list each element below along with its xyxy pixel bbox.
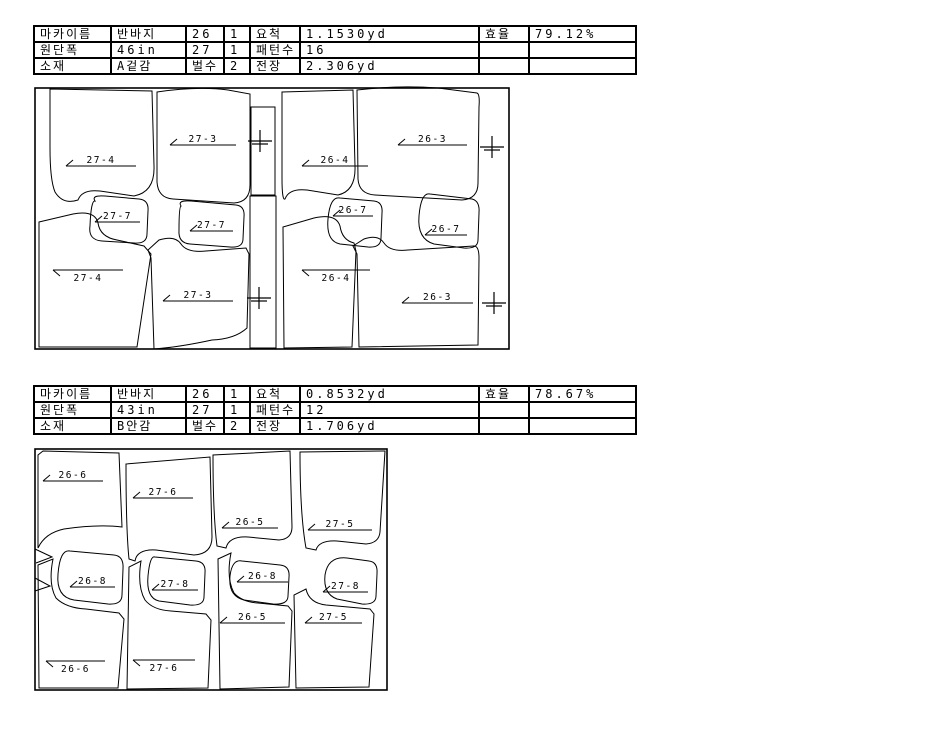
piece-label: 26-5 [222, 517, 278, 528]
marker-b-layout-canvas[interactable]: 26-627-626-527-526-827-826-827-826-627-6… [28, 444, 396, 696]
info-cell-r1c7 [529, 42, 636, 58]
piece-label-text: 26-5 [238, 612, 267, 623]
piece-label: 27-8 [323, 581, 368, 592]
piece-label: 26-5 [220, 612, 285, 623]
info-cell-r0c6: 효율 [479, 26, 529, 42]
piece-label-text: 27-4 [87, 155, 116, 166]
info-row: 소재A겉감벌수2전장2.306yd [34, 58, 636, 74]
piece-label: 26-6 [43, 470, 103, 481]
label-tick-icon [305, 617, 312, 623]
label-tick-icon [46, 661, 53, 667]
label-tick-icon [133, 492, 140, 498]
label-tick-icon [308, 524, 315, 530]
info-cell-r0c4: 요척 [250, 386, 300, 402]
info-cell-r2c7 [529, 418, 636, 434]
info-cell-r1c7 [529, 402, 636, 418]
info-cell-r0c1: 반바지 [111, 386, 186, 402]
info-cell-r2c0: 소재 [34, 58, 111, 74]
piece-label: 27-7 [190, 220, 233, 231]
pattern-piece-26-7[interactable] [419, 194, 479, 248]
info-cell-r1c0: 원단폭 [34, 402, 111, 418]
info-row: 마카이름반바지261요척1.1530yd효율79.12% [34, 26, 636, 42]
info-cell-r1c5: 16 [300, 42, 479, 58]
label-tick-icon [53, 270, 60, 276]
edge-notch [35, 578, 50, 591]
info-cell-r1c4: 패턴수 [250, 402, 300, 418]
info-row: 소재B안감벌수2전장1.706yd [34, 418, 636, 434]
info-cell-r2c4: 전장 [250, 58, 300, 74]
label-tick-icon [163, 295, 170, 301]
info-cell-r0c2: 26 [186, 386, 224, 402]
piece-label-text: 27-7 [197, 220, 226, 231]
plus-mark-icon [248, 130, 272, 152]
piece-label-text: 26-7 [432, 224, 461, 235]
info-cell-r2c3: 2 [224, 58, 250, 74]
pattern-piece-26-5[interactable] [213, 451, 292, 548]
marker-b-info-table: 마카이름반바지261요척0.8532yd효율78.67%원단폭43in271패턴… [33, 385, 637, 435]
label-tick-icon [237, 576, 244, 582]
marker-report-page: 마카이름반바지261요척1.1530yd효율79.12%원단폭46in271패턴… [0, 0, 939, 740]
piece-label: 27-5 [305, 612, 362, 623]
piece-label: 27-3 [170, 134, 236, 145]
piece-label-text: 27-6 [150, 663, 179, 674]
label-tick-icon [220, 617, 227, 623]
pattern-piece-27-5[interactable] [300, 451, 385, 550]
piece-label-text: 26-7 [339, 205, 368, 216]
pattern-piece-26-3[interactable] [353, 237, 479, 347]
label-tick-icon [66, 160, 73, 166]
piece-label-text: 27-4 [74, 273, 103, 284]
piece-label-text: 27-8 [161, 579, 190, 590]
info-cell-r2c5: 1.706yd [300, 418, 479, 434]
info-cell-r2c1: B안감 [111, 418, 186, 434]
piece-label: 27-4 [53, 270, 123, 284]
info-cell-r1c2: 27 [186, 402, 224, 418]
plus-mark-icon [482, 292, 506, 314]
info-cell-r0c0: 마카이름 [34, 386, 111, 402]
label-tick-icon [70, 581, 77, 587]
info-cell-r1c0: 원단폭 [34, 42, 111, 58]
info-cell-r1c6 [479, 402, 529, 418]
info-cell-r1c1: 43in [111, 402, 186, 418]
info-cell-r1c3: 1 [224, 402, 250, 418]
piece-label: 27-6 [133, 660, 195, 674]
label-tick-icon [43, 475, 50, 481]
piece-label: 27-3 [163, 290, 233, 301]
piece-label-text: 27-3 [189, 134, 218, 145]
piece-label: 27-5 [308, 519, 372, 530]
pattern-piece-27-4[interactable] [50, 89, 154, 201]
info-cell-r2c2: 벌수 [186, 58, 224, 74]
info-cell-r2c6 [479, 418, 529, 434]
piece-label: 27-4 [66, 155, 136, 166]
piece-label: 26-6 [46, 661, 105, 675]
info-cell-r2c6 [479, 58, 529, 74]
info-cell-r0c7: 78.67% [529, 386, 636, 402]
piece-label: 27-8 [152, 579, 198, 590]
info-cell-r2c2: 벌수 [186, 418, 224, 434]
info-cell-r2c3: 2 [224, 418, 250, 434]
piece-label: 26-3 [398, 134, 467, 145]
piece-label: 26-7 [425, 224, 467, 235]
piece-label: 26-4 [302, 270, 370, 284]
piece-label-text: 27-7 [103, 211, 132, 222]
info-cell-r2c1: A겉감 [111, 58, 186, 74]
label-tick-icon [170, 139, 177, 145]
piece-label-text: 27-5 [319, 612, 348, 623]
info-row: 원단폭43in271패턴수12 [34, 402, 636, 418]
piece-label: 26-8 [237, 571, 288, 582]
piece-label-text: 26-6 [59, 470, 88, 481]
plus-mark-icon [247, 287, 271, 309]
piece-label-text: 26-4 [322, 273, 351, 284]
info-cell-r0c0: 마카이름 [34, 26, 111, 42]
pattern-piece-27-3[interactable] [157, 88, 250, 203]
piece-label-text: 27-5 [326, 519, 355, 530]
piece-label-text: 26-6 [61, 664, 90, 675]
plus-mark-icon [480, 136, 504, 158]
label-tick-icon [222, 522, 229, 528]
piece-label-text: 26-8 [248, 571, 277, 582]
info-cell-r2c0: 소재 [34, 418, 111, 434]
pattern-piece-27-6[interactable] [126, 457, 212, 561]
piece-label-text: 26-4 [321, 155, 350, 166]
pattern-piece-26-4[interactable] [282, 90, 355, 199]
piece-label: 26-8 [70, 576, 115, 587]
info-cell-r0c2: 26 [186, 26, 224, 42]
info-cell-r0c4: 요척 [250, 26, 300, 42]
info-cell-r0c3: 1 [224, 26, 250, 42]
piece-label-text: 27-3 [184, 290, 213, 301]
info-cell-r2c4: 전장 [250, 418, 300, 434]
info-cell-r1c2: 27 [186, 42, 224, 58]
label-tick-icon [302, 270, 309, 276]
info-cell-r1c3: 1 [224, 42, 250, 58]
piece-label-text: 26-8 [78, 576, 107, 587]
label-tick-icon [398, 139, 405, 145]
pattern-piece-band[interactable] [250, 196, 276, 348]
info-cell-r1c4: 패턴수 [250, 42, 300, 58]
piece-label-text: 26-3 [423, 292, 452, 303]
piece-label: 27-7 [95, 211, 140, 222]
label-tick-icon [402, 297, 409, 303]
info-cell-r1c5: 12 [300, 402, 479, 418]
label-tick-icon [323, 586, 330, 592]
piece-label: 26-7 [333, 205, 373, 216]
pattern-piece-26-6[interactable] [38, 451, 122, 548]
info-cell-r1c6 [479, 42, 529, 58]
label-tick-icon [152, 584, 159, 590]
piece-label-text: 27-6 [149, 487, 178, 498]
label-tick-icon [302, 160, 309, 166]
info-table: 마카이름반바지261요척1.1530yd효율79.12%원단폭46in271패턴… [33, 25, 637, 75]
info-cell-r2c7 [529, 58, 636, 74]
info-row: 원단폭46in271패턴수16 [34, 42, 636, 58]
pattern-piece-band[interactable] [251, 107, 275, 195]
info-cell-r1c1: 46in [111, 42, 186, 58]
info-row: 마카이름반바지261요척0.8532yd효율78.67% [34, 386, 636, 402]
piece-label-text: 26-3 [418, 134, 447, 145]
piece-label: 26-3 [402, 292, 473, 303]
piece-label: 27-6 [133, 487, 193, 498]
label-tick-icon [133, 660, 140, 666]
info-cell-r0c3: 1 [224, 386, 250, 402]
info-cell-r0c5: 1.1530yd [300, 26, 479, 42]
marker-a-layout-canvas[interactable]: 27-427-327-727-727-427-326-426-326-726-7… [28, 84, 518, 354]
marker-a-info-table: 마카이름반바지261요척1.1530yd효율79.12%원단폭46in271패턴… [33, 25, 637, 75]
info-cell-r2c5: 2.306yd [300, 58, 479, 74]
info-cell-r0c7: 79.12% [529, 26, 636, 42]
piece-label-text: 26-5 [236, 517, 265, 528]
label-tick-icon [190, 225, 197, 231]
info-cell-r0c1: 반바지 [111, 26, 186, 42]
info-table: 마카이름반바지261요척0.8532yd효율78.67%원단폭43in271패턴… [33, 385, 637, 435]
info-cell-r0c6: 효율 [479, 386, 529, 402]
piece-label-text: 27-8 [331, 581, 360, 592]
info-cell-r0c5: 0.8532yd [300, 386, 479, 402]
